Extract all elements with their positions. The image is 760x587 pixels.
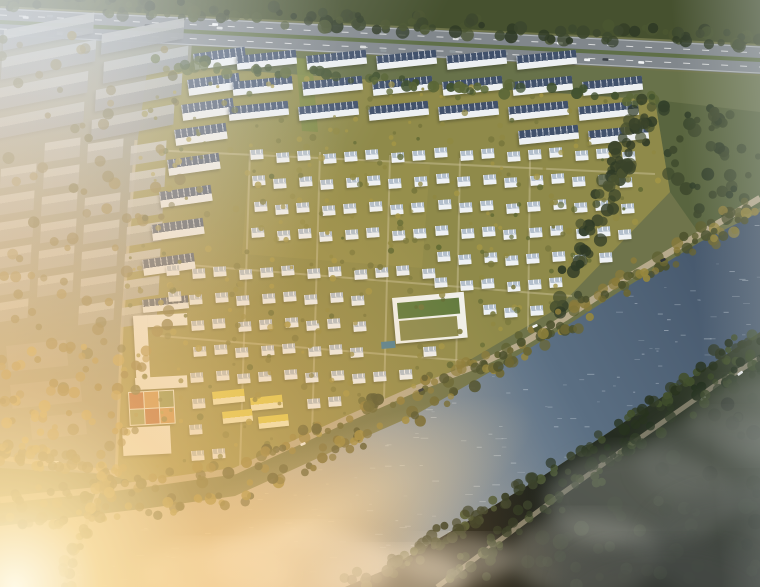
aerial-masterplan-rendering: Aerial rendering of a riverside resident… bbox=[0, 0, 760, 587]
dev-scatter-trees bbox=[121, 66, 661, 478]
west-road-trees bbox=[0, 440, 127, 587]
white-water-mist bbox=[140, 527, 515, 587]
dev-top-tree-band bbox=[151, 54, 660, 107]
vegetation-overlay-layer bbox=[0, 0, 760, 587]
gray-mist bbox=[510, 380, 760, 587]
